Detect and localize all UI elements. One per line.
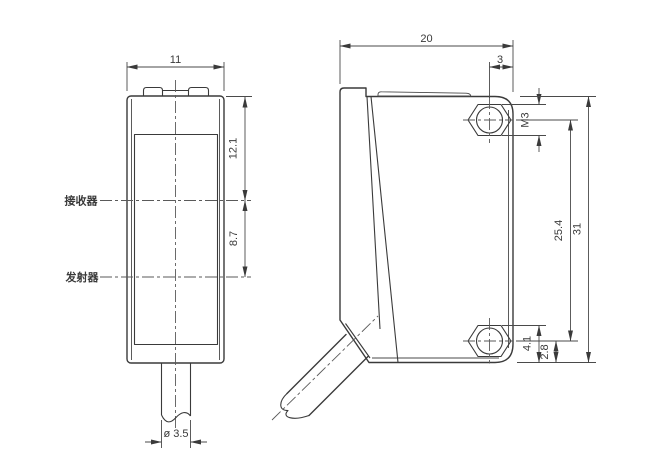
side-top-strip bbox=[378, 92, 471, 96]
front-top-tabs bbox=[144, 88, 209, 97]
top-hole-crosshair bbox=[463, 97, 513, 143]
hex-to-bottom-dim-label: 4.1 bbox=[522, 336, 534, 351]
side-cable-axis bbox=[272, 316, 378, 420]
front-cable-break bbox=[162, 413, 191, 422]
front-cable-sides bbox=[162, 363, 191, 416]
receiver-label: 接收器 bbox=[65, 194, 99, 208]
front-width-dim-label: 11 bbox=[170, 54, 181, 66]
hole-spacing-extension-lines bbox=[516, 120, 578, 341]
emitter-label: 发射器 bbox=[65, 270, 100, 284]
front-view: 11 12.1 8.7 ø 3.5 接收器 发射器 bbox=[65, 54, 253, 448]
side-view: 20 3 M3 25.4 31 4.1 2.8 bbox=[272, 33, 596, 420]
side-front-face-slope-lines bbox=[346, 97, 399, 363]
side-cable-sides bbox=[287, 335, 368, 416]
receiver-to-emitter-dim-label: 8.7 bbox=[228, 231, 240, 246]
hole-spacing-dim-label: 25.4 bbox=[553, 220, 565, 241]
technical-drawing-page: 11 12.1 8.7 ø 3.5 接收器 发射器 bbox=[0, 0, 671, 453]
side-inner-edges bbox=[372, 110, 509, 358]
cable-diameter-dim-label: ø 3.5 bbox=[163, 428, 188, 440]
depth-dim-label: 20 bbox=[420, 33, 432, 45]
dimension-drawing-canvas: 11 12.1 8.7 ø 3.5 接收器 发射器 bbox=[0, 0, 671, 453]
hole-center-to-bottom-dim-label: 2.8 bbox=[539, 344, 551, 359]
hole-to-edge-dim-label: 3 bbox=[497, 54, 503, 66]
front-optical-window bbox=[135, 135, 218, 345]
side-body-outline bbox=[340, 88, 513, 363]
top-to-receiver-dim-label: 12.1 bbox=[228, 138, 240, 159]
height-dim-label: 31 bbox=[572, 223, 584, 235]
depth-extension-lines bbox=[340, 40, 513, 92]
